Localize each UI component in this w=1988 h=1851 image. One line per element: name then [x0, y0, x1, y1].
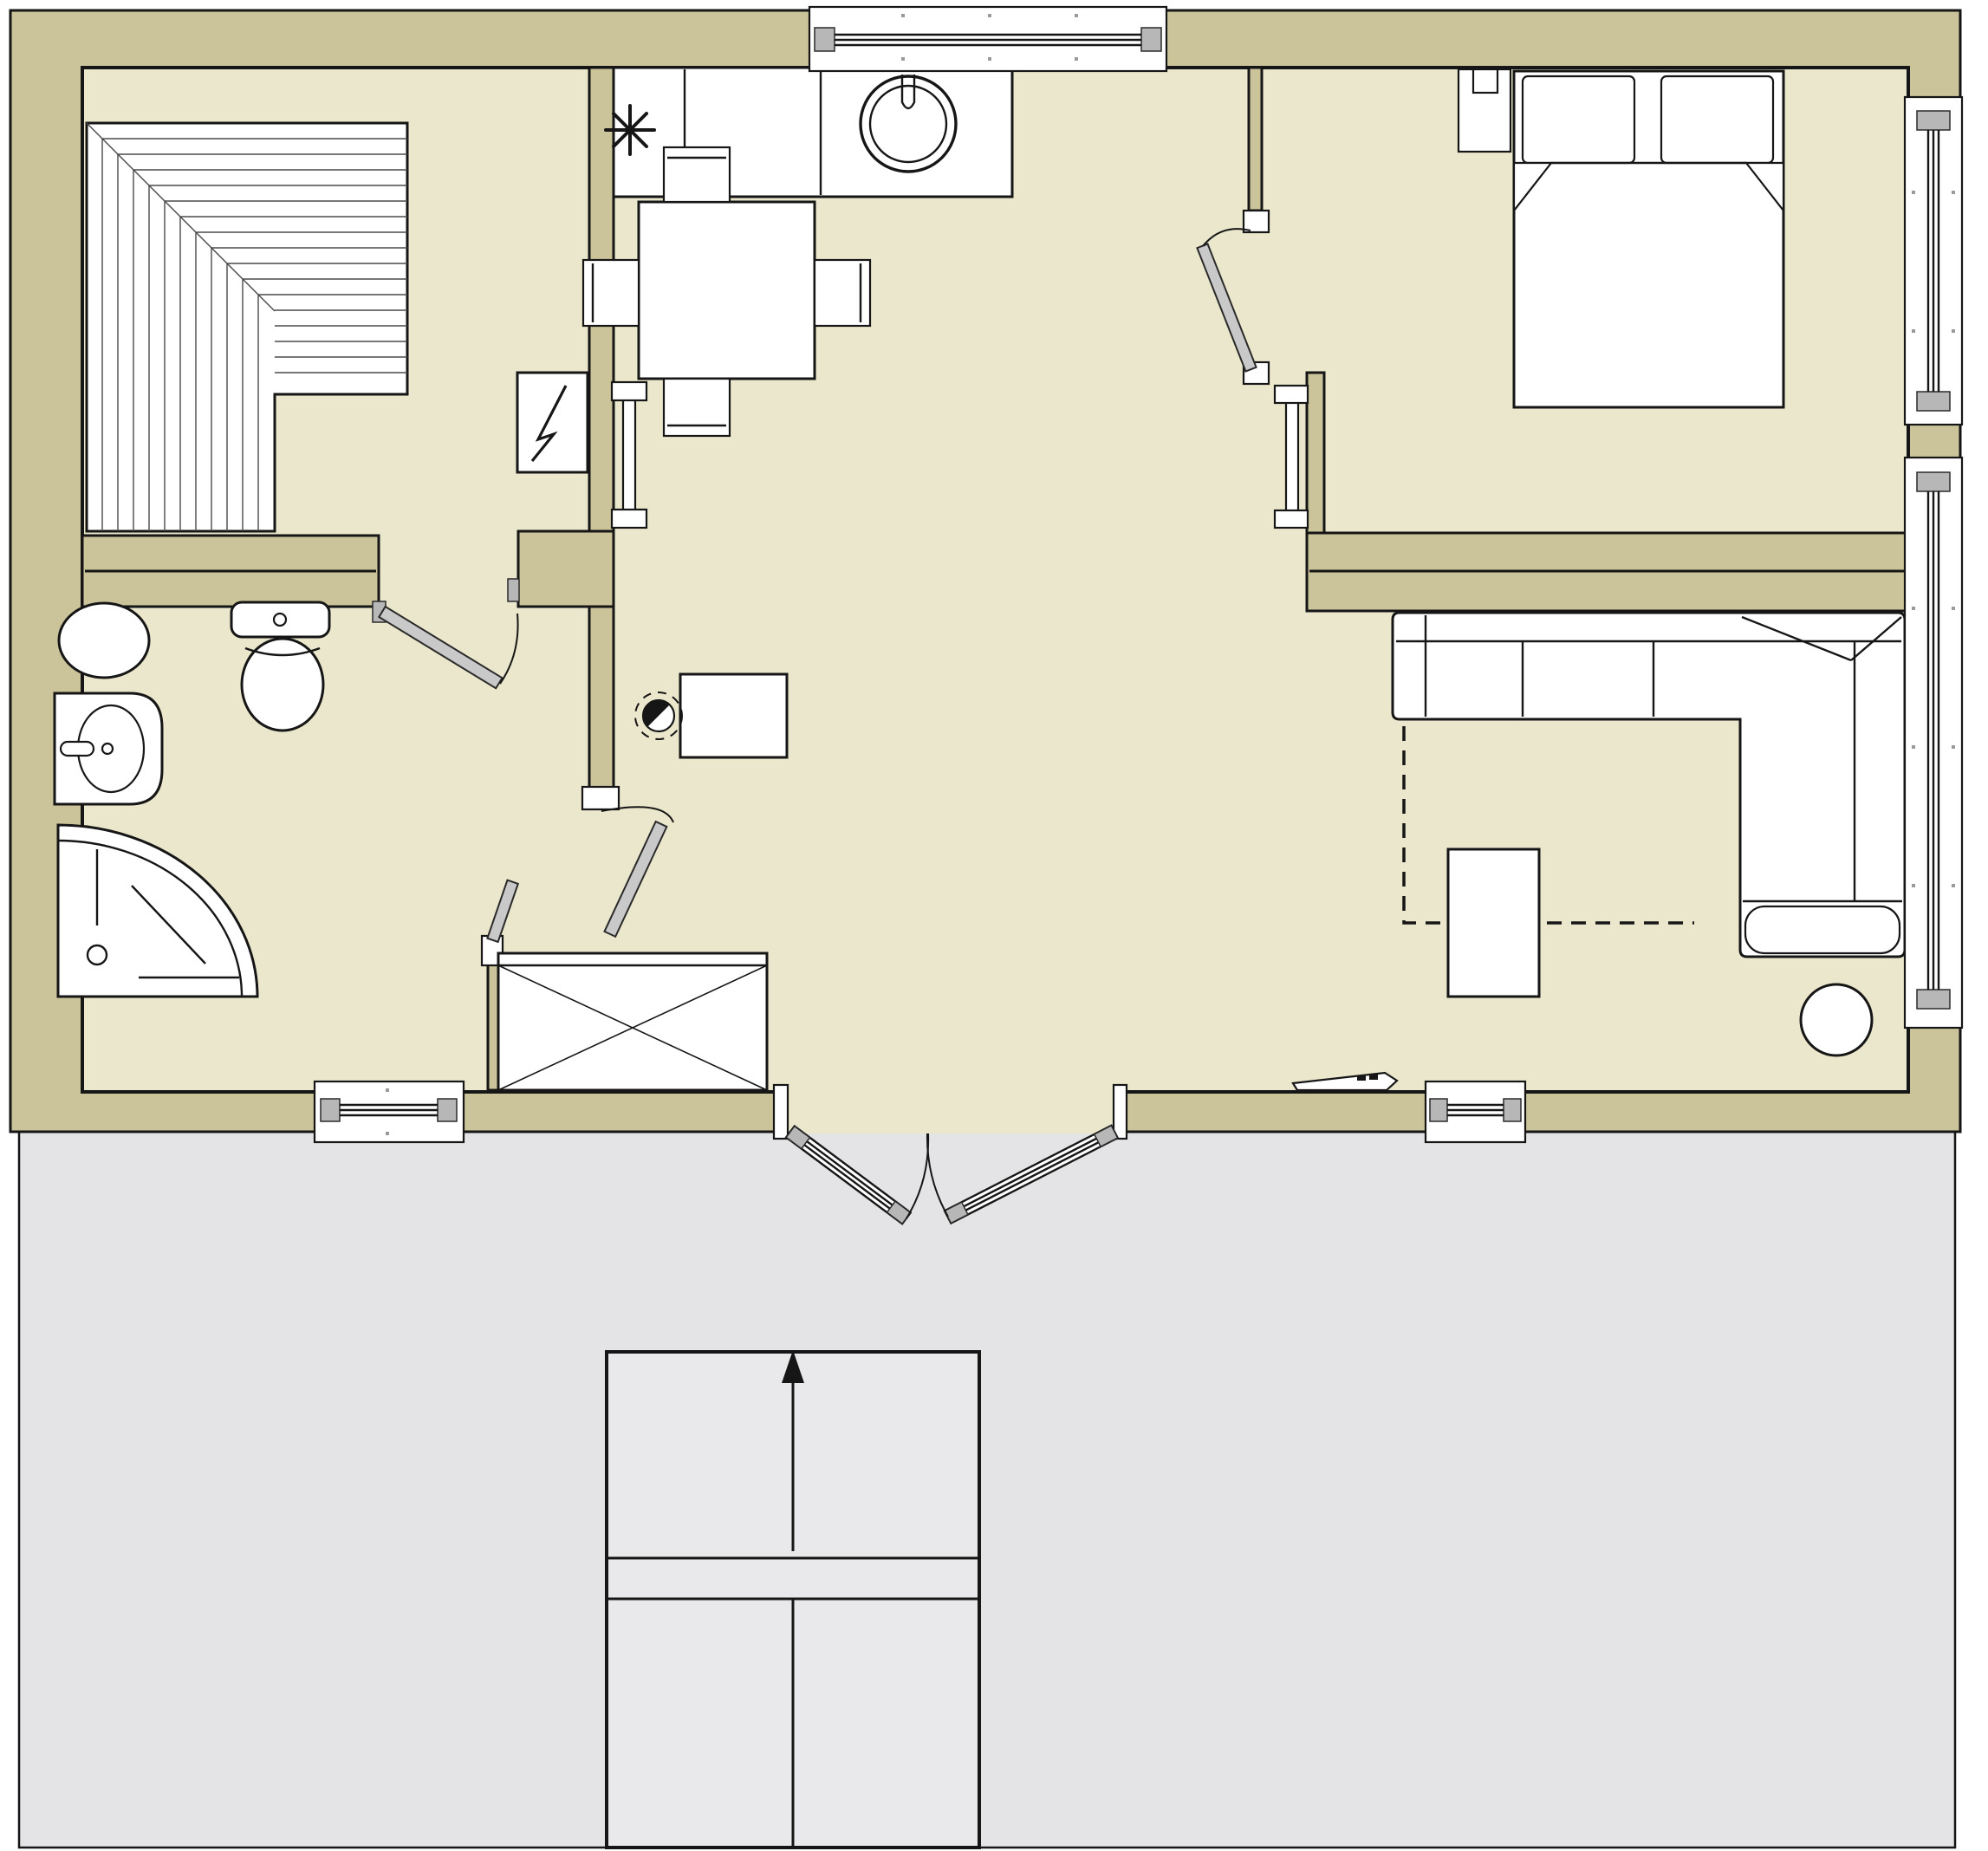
sauna-heater[interactable]	[517, 373, 588, 472]
desk[interactable]	[680, 674, 787, 757]
kitchen-window[interactable]	[809, 7, 1166, 71]
entry-threshold	[786, 1090, 1114, 1133]
dining-chair-top[interactable]	[664, 147, 730, 202]
lamp-icon	[1473, 69, 1497, 93]
deck	[19, 1132, 1955, 1848]
wall-bedroom-corner	[1307, 373, 1324, 536]
bedroom-window[interactable]	[1905, 97, 1962, 425]
nightstand[interactable]	[1459, 69, 1510, 152]
dining-chair-right[interactable]	[815, 260, 870, 326]
living-window[interactable]	[1905, 458, 1962, 1028]
dining-chair-left[interactable]	[583, 260, 639, 326]
vanity-sink[interactable]	[55, 693, 162, 804]
chaise-front	[1745, 906, 1900, 953]
dining-table[interactable]	[639, 202, 815, 379]
living-bottom-window[interactable]	[1426, 1081, 1525, 1142]
wall-junction-block	[518, 531, 614, 607]
pillow	[1661, 76, 1773, 163]
round-stool[interactable]	[1801, 984, 1872, 1055]
entry-steps	[607, 1350, 979, 1848]
wall-closet-side	[488, 964, 498, 1090]
coffee-table[interactable]	[1448, 849, 1539, 997]
floor-plan	[0, 0, 1988, 1851]
cooktop-icon	[606, 106, 654, 154]
wardrobe-closet[interactable]	[498, 953, 767, 1090]
wall-bedroom-left	[1249, 68, 1262, 211]
pillow	[1523, 76, 1634, 163]
kitchen-sink[interactable]	[861, 75, 956, 172]
wall-hall	[589, 607, 614, 806]
faucet-icon	[61, 742, 94, 756]
bathroom-window[interactable]	[315, 1081, 464, 1142]
dining-chair-bottom[interactable]	[664, 379, 730, 436]
round-basin[interactable]	[59, 603, 149, 678]
double-bed[interactable]	[1514, 71, 1783, 407]
